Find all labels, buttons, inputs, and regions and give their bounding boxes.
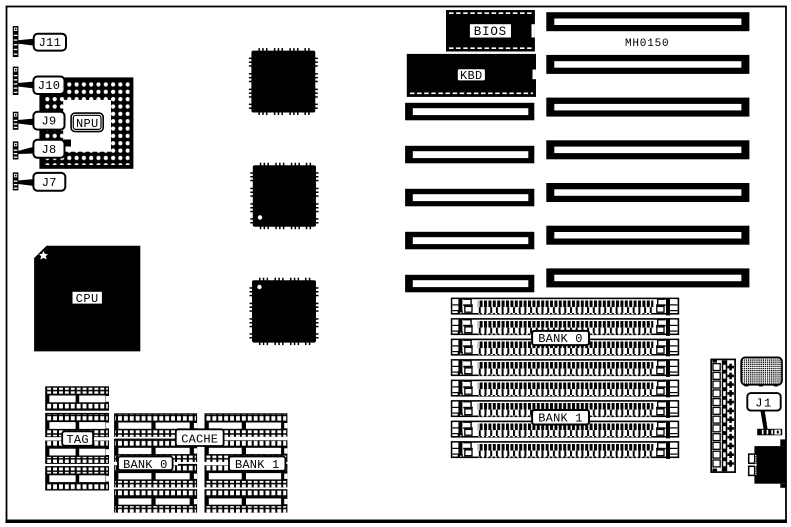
svg-text:J1: J1	[755, 397, 772, 411]
svg-text:BIOS: BIOS	[474, 25, 507, 39]
svg-text:BANK 0: BANK 0	[123, 458, 167, 472]
svg-text:J11: J11	[39, 36, 62, 50]
svg-text:CPU: CPU	[76, 292, 99, 306]
svg-text:MH0150: MH0150	[625, 38, 669, 50]
svg-text:J9: J9	[41, 115, 56, 129]
svg-text:CACHE: CACHE	[181, 432, 218, 446]
svg-text:BANK 1: BANK 1	[235, 458, 279, 472]
svg-text:J10: J10	[38, 79, 61, 93]
svg-text:BANK 1: BANK 1	[538, 412, 582, 426]
svg-text:KBD: KBD	[460, 69, 483, 83]
svg-text:TAG: TAG	[66, 433, 89, 447]
svg-text:NPU: NPU	[76, 117, 99, 131]
svg-text:BANK 0: BANK 0	[538, 332, 582, 346]
svg-text:J7: J7	[42, 176, 57, 190]
svg-text:J8: J8	[41, 143, 56, 157]
